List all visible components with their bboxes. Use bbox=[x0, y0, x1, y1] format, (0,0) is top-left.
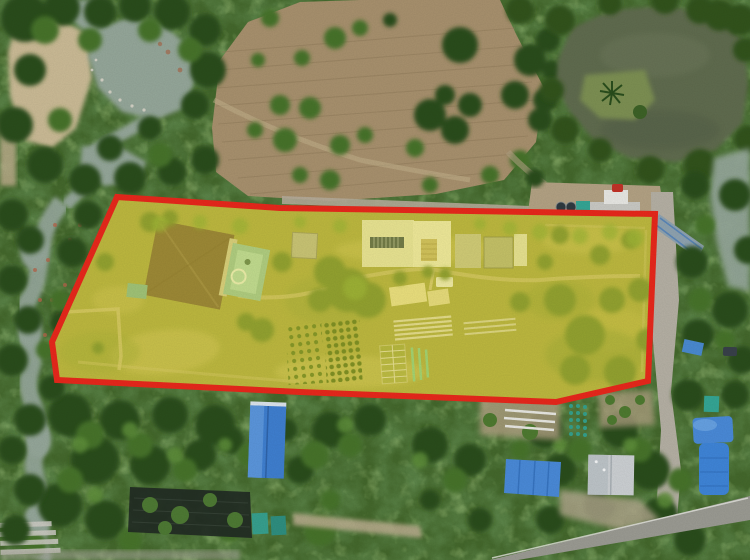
photo-grain bbox=[0, 0, 750, 560]
aerial-photo-canvas: Aerial drone photograph of a rural land … bbox=[0, 0, 750, 560]
aerial-photo: Aerial drone photograph of a rural land … bbox=[0, 0, 750, 560]
